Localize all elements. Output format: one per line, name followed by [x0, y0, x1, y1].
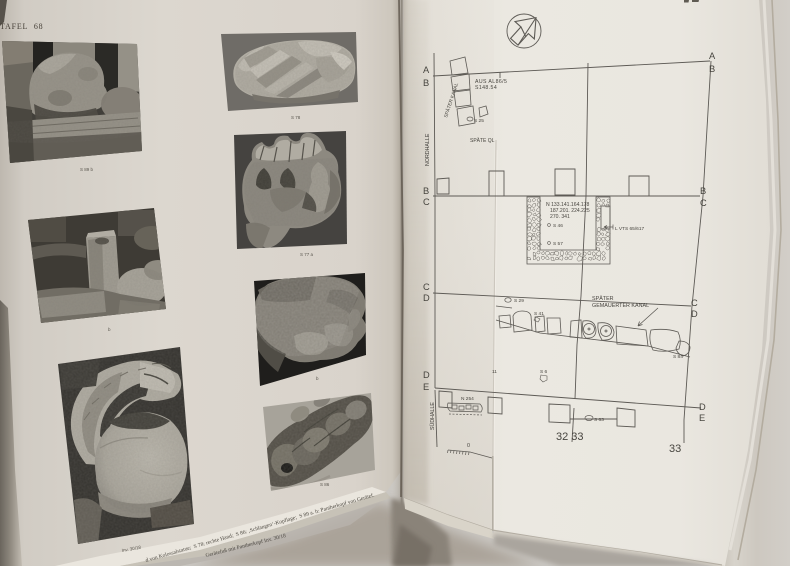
svg-text:C: C: [423, 282, 430, 292]
svg-text:S 89 b: S 89 b: [80, 167, 94, 172]
svg-text:S 86: S 86: [320, 482, 330, 487]
svg-text:S 57: S 57: [553, 241, 563, 247]
svg-text:S 77 a: S 77 a: [300, 252, 314, 257]
svg-text:C: C: [691, 298, 698, 308]
svg-text:S 6: S 6: [540, 369, 548, 375]
svg-text:SÜDHALLE: SÜDHALLE: [429, 402, 436, 430]
svg-text:B: B: [423, 78, 429, 88]
svg-text:E: E: [423, 382, 429, 392]
svg-text:B: B: [700, 186, 706, 196]
svg-text:S 63: S 63: [594, 417, 604, 423]
svg-text:NORDHALLE: NORDHALLE: [425, 133, 431, 166]
svg-text:33: 33: [669, 443, 681, 455]
svg-text:D: D: [423, 370, 430, 380]
svg-text:S 41: S 41: [534, 311, 544, 317]
svg-text:B: B: [423, 186, 429, 196]
svg-text:E: E: [699, 413, 705, 423]
svg-text:C: C: [423, 197, 430, 207]
svg-text:SPÄTE QL: SPÄTE QL: [470, 137, 495, 144]
svg-text:N 254: N 254: [461, 396, 474, 402]
svg-text:A: A: [423, 65, 430, 75]
svg-text:D: D: [423, 293, 430, 303]
svg-text:0: 0: [467, 443, 470, 449]
svg-text:S 29: S 29: [514, 298, 524, 304]
svg-text:S 46: S 46: [553, 223, 563, 229]
svg-text:S 25: S 25: [474, 118, 484, 124]
svg-text:270. 341: 270. 341: [550, 214, 570, 220]
svg-text:B: B: [709, 64, 715, 74]
svg-text:32 33: 32 33: [556, 431, 584, 443]
svg-text:11: 11: [492, 369, 497, 375]
svg-text:S 84: S 84: [673, 354, 683, 360]
svg-text:SPÄTER: SPÄTER: [592, 295, 614, 302]
svg-text:A: A: [709, 51, 716, 61]
svg-text:C: C: [700, 198, 707, 208]
svg-text:S148.54: S148.54: [475, 85, 497, 91]
svg-text:TAFEL 68: TAFEL 68: [0, 22, 43, 31]
svg-text:D: D: [691, 309, 698, 319]
svg-text:GEMAUERTER KANAL: GEMAUERTER KANAL: [592, 303, 649, 309]
svg-text:L VTS 65/617: L VTS 65/617: [615, 226, 644, 232]
svg-text:S 78: S 78: [291, 115, 301, 120]
svg-text:D: D: [699, 402, 706, 412]
